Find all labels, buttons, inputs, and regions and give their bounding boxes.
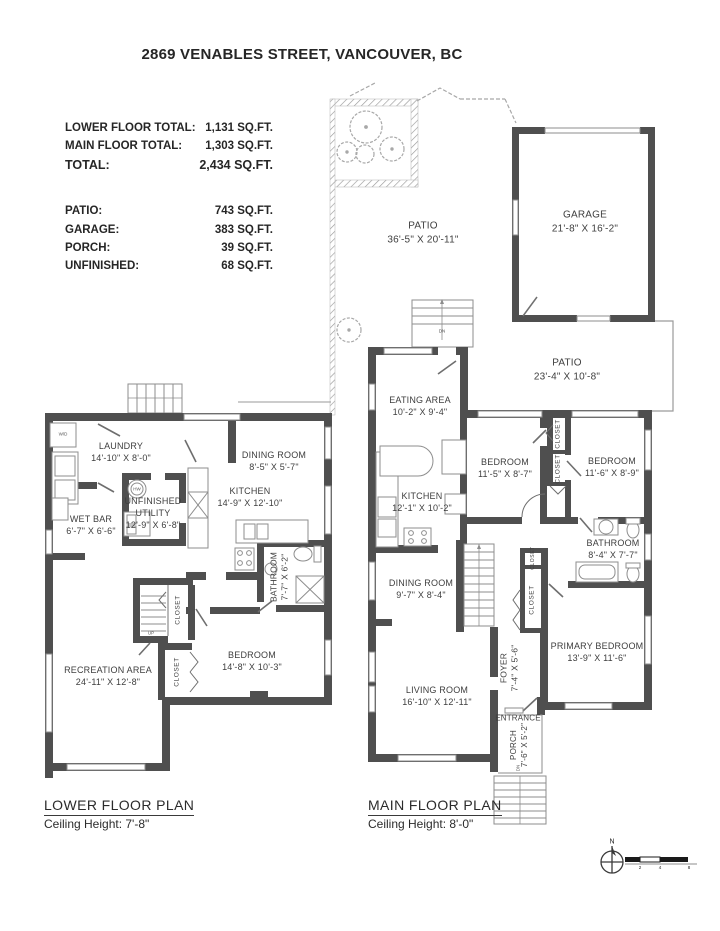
lower-plan-title-block: LOWER FLOOR PLAN Ceiling Height: 7'-8"	[44, 797, 194, 831]
room-label-main-bathroom: BATHROOM 8'-4" X 7'-7"	[587, 537, 640, 561]
stat-row: PORCH: 39 SQ.FT.	[65, 239, 273, 257]
hot-water-tank-icon: HW	[133, 487, 141, 492]
room-label-main-kitchen: KITCHEN 12'-1" X 10'-2"	[392, 490, 452, 514]
room-label-primary-bedroom: PRIMARY BEDROOM 13'-9" X 11'-6"	[551, 640, 644, 664]
room-label-porch: PORCH 7'-6" X 5'-2"	[509, 723, 531, 767]
floorplan-page: 2869 VENABLES STREET, VANCOUVER, BC LOWE…	[0, 0, 720, 931]
stat-value: 1,131 SQ.FT.	[205, 119, 273, 137]
closet-label-foyer: CLOSET	[529, 585, 536, 615]
stat-label: GARAGE:	[65, 221, 119, 239]
room-label-lower-bathroom: BATHROOM 7'-7" X 6'-2"	[269, 552, 292, 602]
room-label-patio-lower: PATIO 23'-4" X 10'-8"	[534, 357, 600, 384]
compass-north-label: N	[609, 839, 614, 846]
closet-label-b: CLOSET	[555, 454, 562, 484]
room-label-lower-kitchen: KITCHEN 14'-9" X 12'-10"	[217, 485, 282, 509]
main-plan-title: MAIN FLOOR PLAN	[368, 797, 502, 816]
room-label-recreation: RECREATION AREA 24'-11" X 12'-8"	[64, 664, 152, 688]
room-label-bedroom1: BEDROOM 11'-5" X 8'-7"	[478, 456, 532, 480]
stat-row: MAIN FLOOR TOTAL: 1,303 SQ.FT.	[65, 137, 273, 155]
page-title: 2869 VENABLES STREET, VANCOUVER, BC	[117, 46, 487, 63]
stat-value: 1,303 SQ.FT.	[205, 137, 273, 155]
stat-label: MAIN FLOOR TOTAL:	[65, 137, 182, 155]
stairs-down-label-top: DN	[439, 329, 446, 334]
stat-value: 383 SQ.FT.	[215, 221, 273, 239]
scale-tick-2: 2	[639, 865, 642, 870]
stairs-down-label-porch: DN	[516, 765, 521, 772]
stat-label: LOWER FLOOR TOTAL:	[65, 119, 196, 137]
washer-dryer-icon: W/D	[59, 432, 68, 437]
lower-plan-ceiling-height: Ceiling Height: 7'-8"	[44, 816, 194, 831]
stat-value: 2,434 SQ.FT.	[199, 156, 273, 174]
room-label-utility: UNFINISHED UTILITY 12'-9" X 6'-8"	[117, 495, 189, 531]
room-label-main-dining: DINING ROOM 9'-7" X 8'-4"	[389, 577, 453, 601]
stairs-up-label: UP	[148, 631, 154, 636]
room-label-eating-area: EATING AREA 10'-2" X 9'-4"	[389, 394, 451, 418]
room-label-bedroom2: BEDROOM 11'-6" X 8'-9"	[585, 455, 639, 479]
main-plan-ceiling-height: Ceiling Height: 8'-0"	[368, 816, 502, 831]
stat-value: 743 SQ.FT.	[215, 202, 273, 220]
closet-label-bedroom: CLOSET	[174, 657, 181, 687]
room-label-laundry: LAUNDRY 14'-10" X 8'-0"	[91, 440, 151, 464]
scale-tick-4: 4	[659, 865, 662, 870]
room-label-garage: GARAGE 21'-8" X 16'-2"	[552, 209, 618, 236]
stat-label: PATIO:	[65, 202, 102, 220]
stat-row: UNFINISHED: 68 SQ.FT.	[65, 257, 273, 275]
room-label-living-room: LIVING ROOM 16'-10" X 12'-11"	[402, 684, 472, 708]
stat-value: 68 SQ.FT.	[221, 257, 273, 275]
room-label-lower-dining: DINING ROOM 8'-5" X 5'-7"	[242, 449, 306, 473]
text-overlay: 2869 VENABLES STREET, VANCOUVER, BC LOWE…	[0, 0, 720, 931]
room-label-lower-bedroom: BEDROOM 14'-8" X 10'-3"	[222, 649, 282, 673]
stat-label: TOTAL:	[65, 156, 110, 174]
closet-label-hall: CLOSET	[175, 595, 182, 625]
stat-row-total: TOTAL: 2,434 SQ.FT.	[65, 156, 273, 174]
stat-row: LOWER FLOOR TOTAL: 1,131 SQ.FT.	[65, 119, 273, 137]
stat-label: PORCH:	[65, 239, 110, 257]
closet-label-small: CLOSET	[530, 546, 536, 570]
closet-label-a: CLOSET	[555, 419, 562, 449]
room-label-wet-bar: WET BAR 6'-7" X 6'-6"	[66, 513, 115, 537]
scale-tick-8: 8	[688, 865, 691, 870]
area-summary: LOWER FLOOR TOTAL: 1,131 SQ.FT. MAIN FLO…	[65, 119, 273, 276]
room-label-foyer: FOYER 7'-4" X 5'-6"	[499, 645, 522, 692]
lower-plan-title: LOWER FLOOR PLAN	[44, 797, 194, 816]
stat-label: UNFINISHED:	[65, 257, 139, 275]
stat-value: 39 SQ.FT.	[221, 239, 273, 257]
room-label-patio-upper: PATIO 36'-5" X 20'-11"	[387, 220, 458, 247]
stat-row: GARAGE: 383 SQ.FT.	[65, 221, 273, 239]
main-plan-title-block: MAIN FLOOR PLAN Ceiling Height: 8'-0"	[368, 797, 502, 831]
stat-row: PATIO: 743 SQ.FT.	[65, 202, 273, 220]
